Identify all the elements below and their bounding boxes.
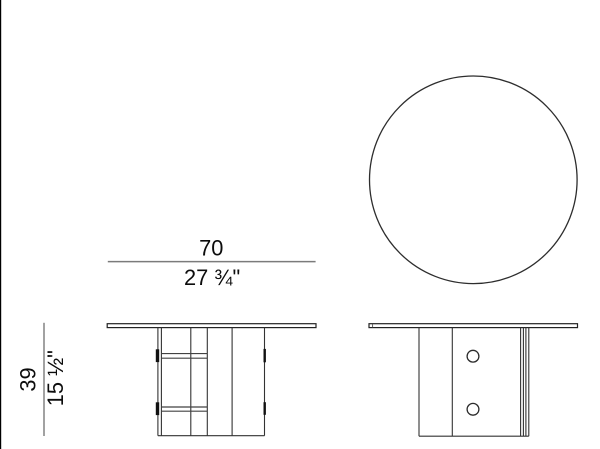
svg-text:70: 70 bbox=[199, 236, 223, 261]
svg-text:27 ¾": 27 ¾" bbox=[184, 265, 240, 290]
svg-text:39: 39 bbox=[16, 367, 41, 391]
svg-text:15 ½": 15 ½" bbox=[43, 350, 68, 406]
